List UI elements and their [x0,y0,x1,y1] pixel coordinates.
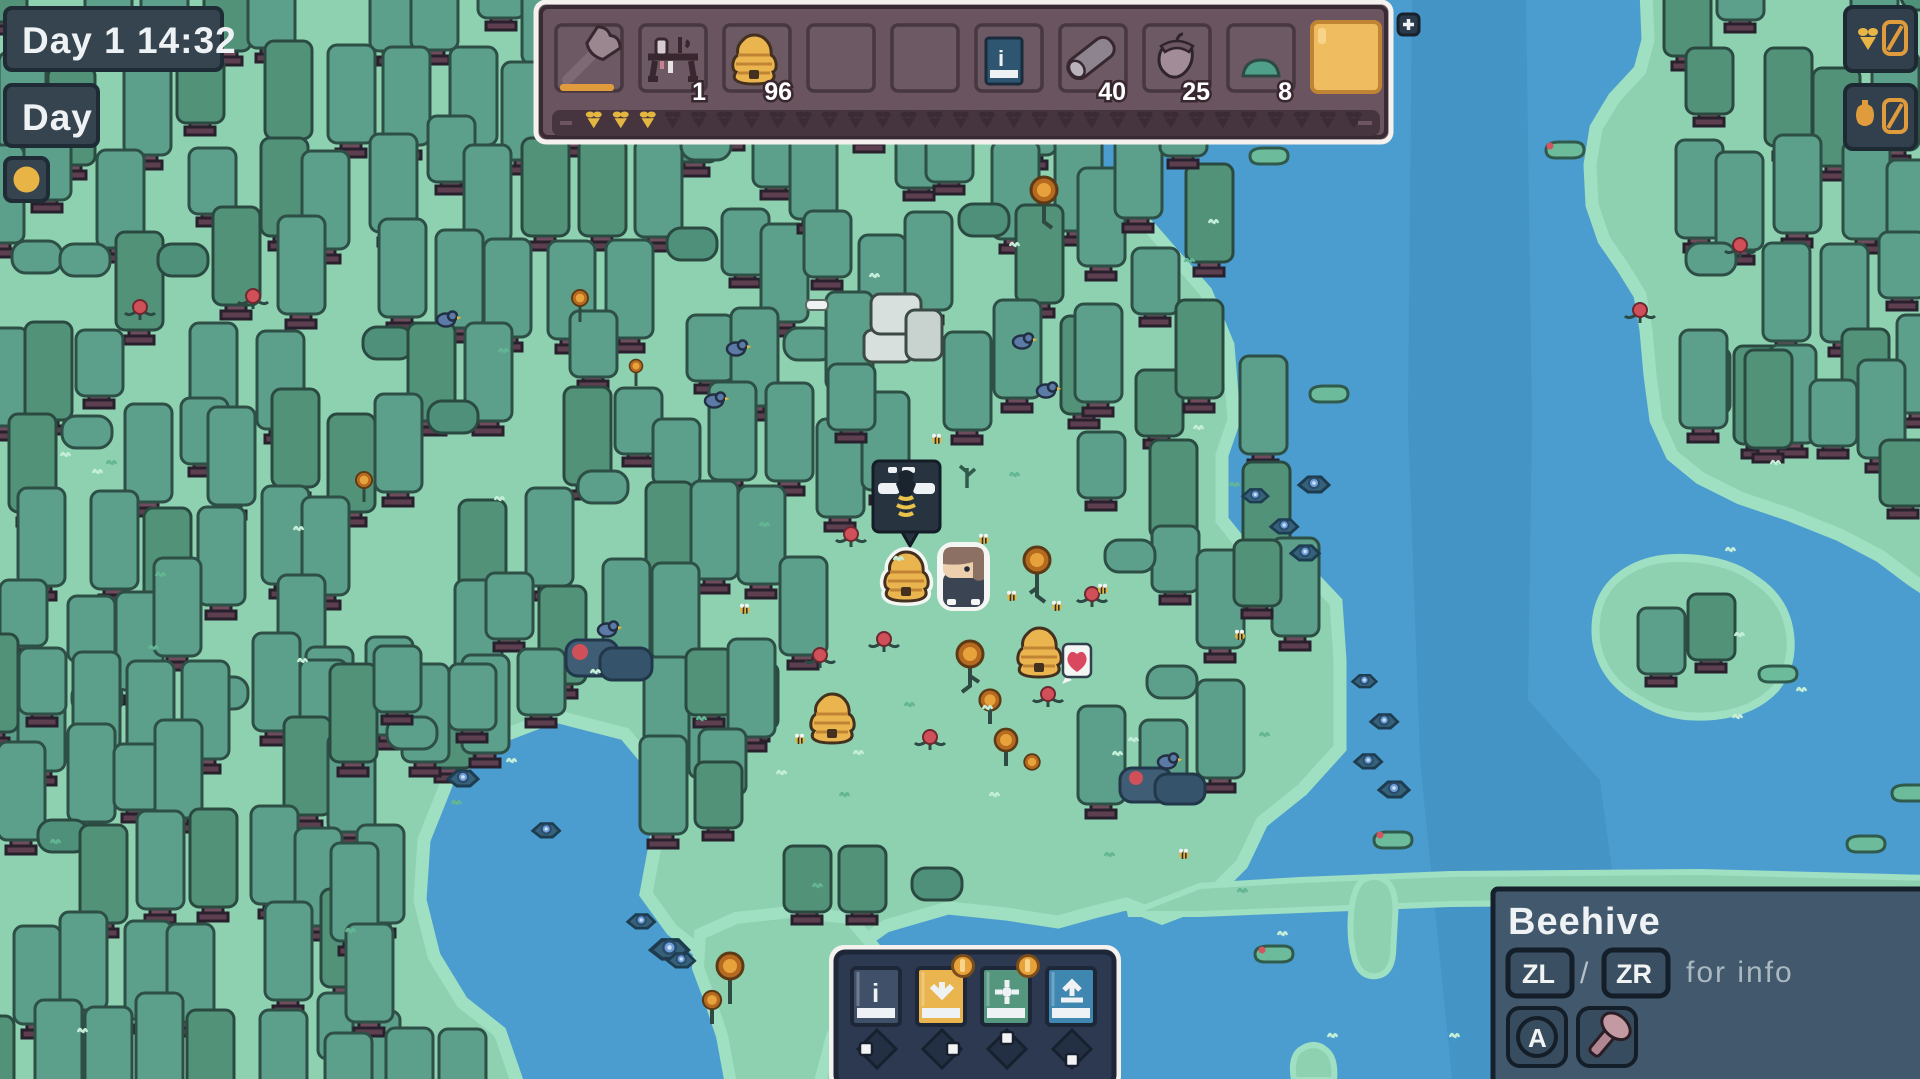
svg-text:1: 1 [692,78,706,106]
svg-text:i: i [872,978,879,1008]
svg-text:/: / [1580,957,1589,990]
svg-text:ZL: ZL [1522,959,1555,989]
svg-text:Beehive: Beehive [1508,901,1661,943]
svg-text:40: 40 [1098,78,1126,106]
svg-text:8: 8 [1278,78,1292,106]
svg-text:A: A [1528,1023,1547,1053]
svg-text:96: 96 [764,78,792,106]
svg-text:Day: Day [22,97,93,138]
svg-text:for info: for info [1686,956,1794,989]
svg-text:ZR: ZR [1616,959,1652,989]
svg-text:i: i [998,46,1004,71]
svg-text:Day 1 14:32: Day 1 14:32 [22,20,237,61]
svg-text:25: 25 [1182,78,1210,106]
